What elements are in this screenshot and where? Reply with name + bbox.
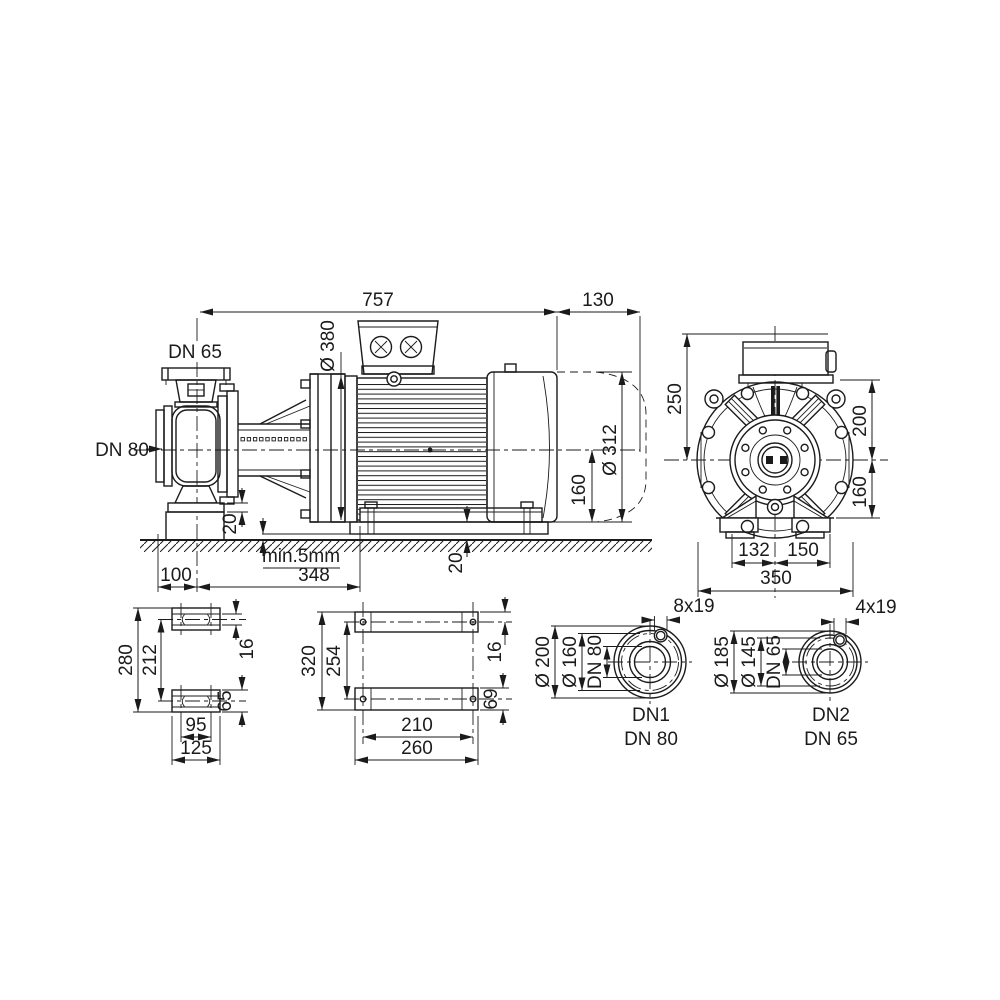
dim-motor-dia: Ø 312 [598, 372, 632, 522]
svg-text:20: 20 [446, 552, 467, 573]
pump-foot [166, 486, 224, 540]
svg-text:69: 69 [481, 688, 502, 709]
pump-dimensional-drawing: DN 65 DN 80 757 130 Ø 380 Ø 312 [0, 0, 1000, 1000]
side-view: DN 65 DN 80 757 130 Ø 380 Ø 312 [95, 290, 652, 592]
dim-pf-hole-pitch: 212 [140, 620, 161, 702]
svg-text:160: 160 [850, 476, 871, 508]
dim-foot-spacing: 132 150 [732, 534, 830, 568]
svg-text:320: 320 [299, 645, 320, 677]
svg-text:125: 125 [180, 738, 212, 759]
svg-text:20: 20 [220, 513, 241, 534]
flange-dn1-view: 8x19 Ø 200 Ø 160 DN 80 DN1 DN 80 [533, 596, 715, 750]
suction-flange-label-group: DN 80 [95, 440, 162, 461]
dim-flange-top-to-center: 200 [840, 380, 880, 460]
dim-mf-hole-pitch-cross: 210 [363, 715, 473, 737]
svg-text:Ø 312: Ø 312 [600, 424, 621, 476]
dim-mf-edge-offset: 16 [480, 597, 511, 663]
grout-plate [350, 522, 548, 534]
svg-text:DN 65: DN 65 [764, 635, 785, 689]
drain-plug-icon [768, 500, 783, 515]
vent-holes [241, 438, 306, 441]
dim-f2-holes: 4x19 [822, 597, 897, 634]
svg-text:Ø 160: Ø 160 [560, 636, 581, 688]
svg-text:350: 350 [760, 568, 792, 589]
svg-text:260: 260 [401, 738, 433, 759]
terminal-box-side [358, 321, 438, 374]
svg-text:Ø 185: Ø 185 [712, 636, 733, 688]
svg-text:212: 212 [140, 644, 161, 676]
svg-text:16: 16 [485, 641, 506, 662]
svg-text:210: 210 [401, 715, 433, 736]
svg-text:Ø 145: Ø 145 [739, 636, 760, 688]
svg-text:min.5mm: min.5mm [262, 546, 340, 567]
flange1-size-label: DN 80 [624, 729, 678, 750]
svg-text:8x19: 8x19 [673, 596, 714, 617]
motor-flange [301, 374, 345, 522]
svg-text:95: 95 [185, 715, 206, 736]
svg-text:200: 200 [850, 405, 871, 437]
shaft-key [780, 456, 787, 464]
svg-text:250: 250 [665, 383, 686, 415]
svg-text:130: 130 [582, 290, 614, 311]
discharge-flange-label: DN 65 [168, 342, 222, 363]
dim-shaft-height-side: 160 [552, 450, 600, 522]
lifting-eye-icon [387, 372, 401, 386]
dim-mf-hole-pitch: 254 [324, 622, 347, 699]
svg-text:160: 160 [569, 474, 590, 506]
shaft-key [766, 456, 773, 464]
dim-f1-holes: 8x19 [642, 596, 715, 630]
pump-foot-view: 280 212 16 65 95 [116, 599, 258, 765]
front-view: 250 200 160 132 150 350 [664, 326, 888, 598]
dim-pf-slot: 16 [222, 599, 258, 660]
ground [140, 540, 652, 552]
svg-text:280: 280 [116, 644, 137, 676]
casing-cover [218, 384, 238, 504]
svg-text:65: 65 [215, 690, 236, 711]
motor-fins [358, 382, 486, 516]
svg-text:Ø 380: Ø 380 [318, 320, 339, 372]
svg-text:150: 150 [787, 540, 819, 561]
dim-fan-clearance: 130 [557, 290, 640, 452]
svg-text:254: 254 [324, 645, 345, 677]
svg-text:348: 348 [298, 565, 330, 586]
suction-flange-label: DN 80 [95, 440, 149, 461]
flange-dn2-view: 4x19 Ø 185 Ø 145 DN 65 DN2 DN 65 [712, 597, 897, 750]
bearing-housing [730, 415, 820, 505]
fan-cover [487, 364, 557, 522]
svg-text:Ø 200: Ø 200 [533, 636, 554, 688]
svg-text:16: 16 [237, 638, 258, 659]
svg-text:4x19: 4x19 [855, 597, 896, 618]
svg-text:757: 757 [362, 290, 394, 311]
dim-mf-foot-width: 69 [480, 673, 509, 725]
flange2-size-label: DN 65 [804, 729, 858, 750]
motor-foot-view: 320 254 16 69 210 260 [299, 597, 512, 765]
pump-volute [156, 406, 220, 486]
drawing-svg: DN 65 DN 80 757 130 Ø 380 Ø 312 [0, 0, 1000, 1000]
flange1-id-label: DN1 [632, 705, 670, 726]
dim-adapter-flange-dia: Ø 380 [318, 320, 341, 520]
svg-text:DN 80: DN 80 [585, 635, 606, 689]
flange2-id-label: DN2 [812, 705, 850, 726]
svg-text:100: 100 [160, 565, 192, 586]
svg-text:132: 132 [738, 540, 770, 561]
lantern [238, 400, 310, 498]
